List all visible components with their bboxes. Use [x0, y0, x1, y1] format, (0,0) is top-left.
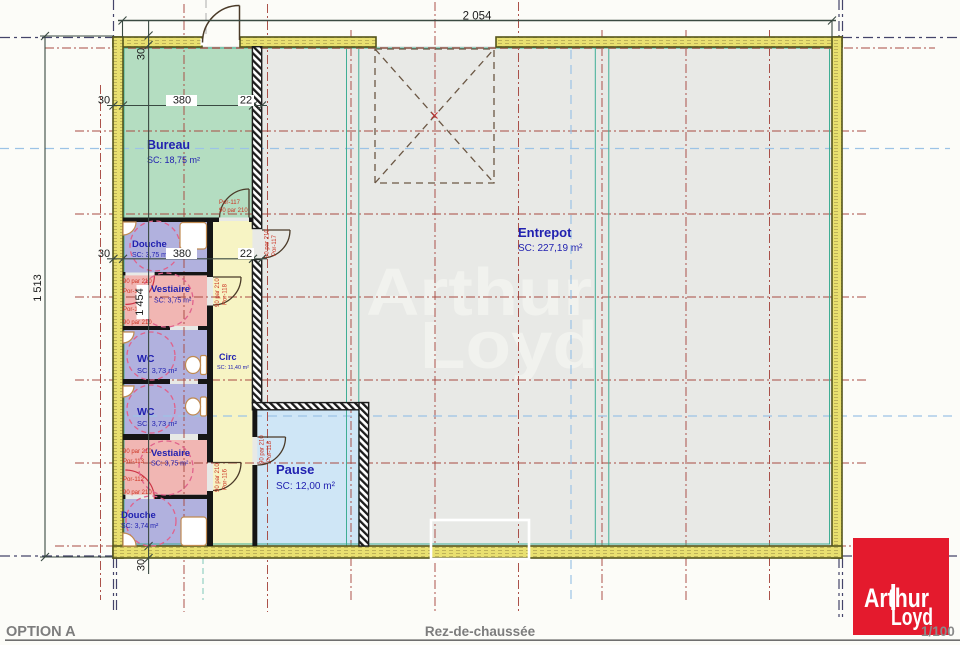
svg-text:2 054: 2 054: [463, 11, 492, 23]
svg-text:SC: 18,75 m²: SC: 18,75 m²: [147, 155, 200, 165]
svg-text:Por-117: Por-117: [272, 234, 278, 256]
svg-text:Por-118: Por-118: [267, 440, 273, 462]
svg-text:90 par 210: 90 par 210: [123, 279, 152, 285]
svg-text:Por-116: Por-116: [223, 468, 229, 490]
svg-text:90 par 210: 90 par 210: [215, 278, 221, 307]
svg-text:90 par 210: 90 par 210: [260, 435, 266, 464]
svg-text:SC: 3,75 m²: SC: 3,75 m²: [154, 298, 192, 305]
svg-text:1 513: 1 513: [32, 274, 44, 302]
svg-text:30: 30: [136, 48, 148, 60]
svg-text:30: 30: [98, 248, 110, 260]
svg-text:Rez-de-chaussée: Rez-de-chaussée: [425, 624, 536, 639]
svg-text:Por-118: Por-118: [223, 283, 229, 305]
svg-text:30: 30: [98, 95, 110, 107]
svg-text:SC: 3,75 m²: SC: 3,75 m²: [151, 461, 189, 468]
svg-text:SC: 3,75 m²: SC: 3,75 m²: [132, 252, 170, 259]
svg-text:OPTION A: OPTION A: [6, 624, 76, 640]
svg-text:Entrepot: Entrepot: [518, 225, 572, 240]
svg-text:22: 22: [240, 248, 252, 260]
svg-text:Bureau: Bureau: [147, 138, 190, 152]
svg-text:30: 30: [136, 559, 148, 571]
svg-text:Douche: Douche: [132, 239, 167, 250]
svg-text:Por-117: Por-117: [219, 200, 241, 206]
svg-text:22: 22: [240, 95, 252, 107]
svg-text:SC: 3,73 m²: SC: 3,73 m²: [137, 419, 178, 428]
svg-text:Vestiaire: Vestiaire: [151, 284, 190, 295]
svg-text:WC: WC: [137, 406, 155, 418]
svg-text:WC: WC: [137, 353, 155, 365]
svg-text:SC: 3,73 m²: SC: 3,73 m²: [137, 366, 178, 375]
svg-text:90 par 210: 90 par 210: [265, 229, 271, 258]
svg-text:Pause: Pause: [276, 462, 314, 477]
svg-text:Por-112: Por-112: [123, 477, 145, 483]
svg-text:380: 380: [173, 95, 191, 107]
svg-text:90 par 210: 90 par 210: [219, 208, 248, 214]
svg-text:Por-113: Por-113: [123, 459, 145, 465]
svg-text:Douche: Douche: [121, 510, 156, 521]
svg-text:90 par 210: 90 par 210: [215, 463, 221, 492]
svg-text:Vestiaire: Vestiaire: [151, 448, 190, 459]
svg-text:SC: 227,19 m²: SC: 227,19 m²: [518, 243, 583, 254]
svg-text:90 par 210: 90 par 210: [123, 449, 152, 455]
svg-text:380: 380: [173, 248, 191, 260]
svg-text:SC: 11,40 m²: SC: 11,40 m²: [217, 365, 249, 371]
svg-text:Circ: Circ: [219, 352, 237, 362]
svg-text:1 454: 1 454: [134, 288, 146, 316]
svg-text:90 par 210: 90 par 210: [123, 320, 152, 326]
svg-text:SC: 12,00 m²: SC: 12,00 m²: [276, 481, 336, 492]
svg-text:90 par 210: 90 par 210: [123, 490, 152, 496]
svg-text:SC: 3,74 m²: SC: 3,74 m²: [121, 523, 159, 530]
svg-text:1/100: 1/100: [921, 624, 955, 639]
